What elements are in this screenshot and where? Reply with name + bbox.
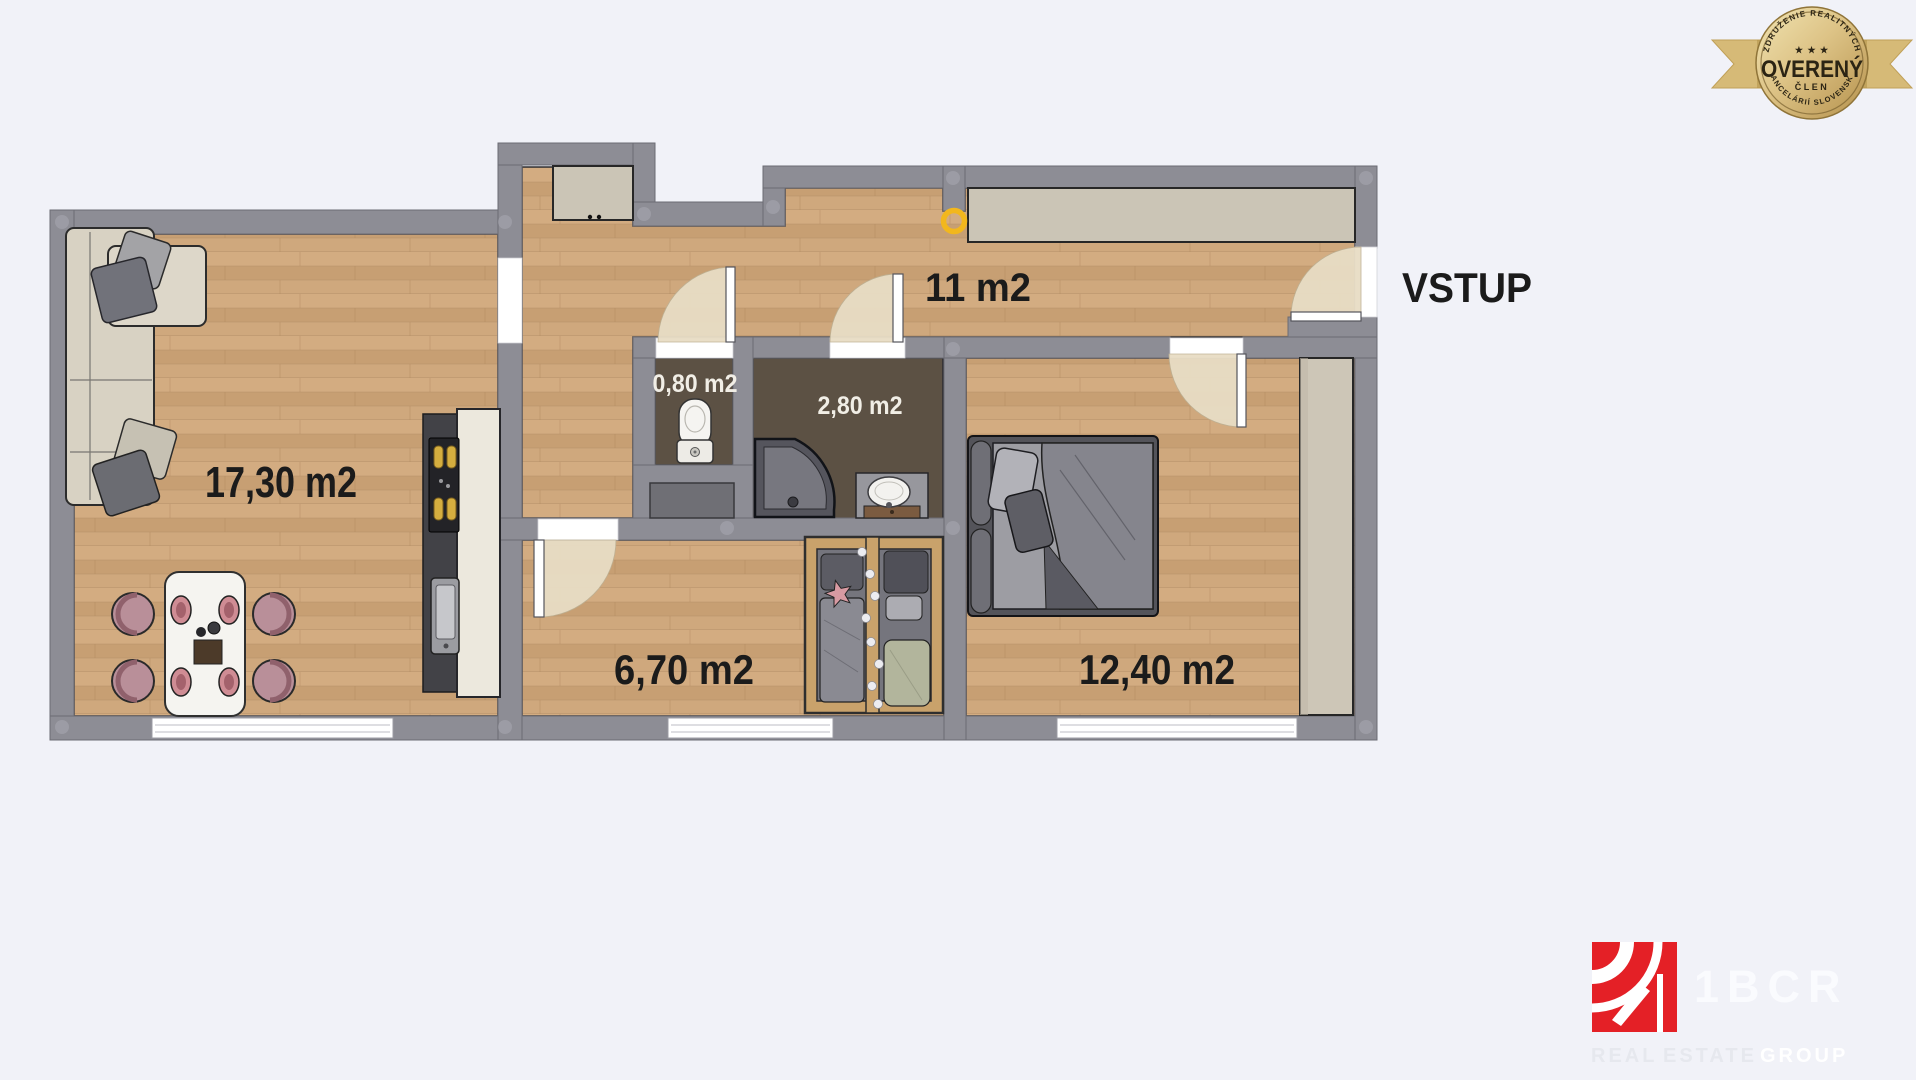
room-label-bathroom: 2,80 m2 — [818, 392, 903, 420]
member-badge: ZDRUŽENIE REALITNÝCH ★ ★ ★ OVERENÝ ČLEN … — [0, 0, 1912, 119]
closet-handle — [588, 215, 592, 219]
crib-cushion — [886, 596, 922, 620]
logo-word-real: REAL — [1591, 1045, 1657, 1067]
crib-green-blanket — [884, 640, 930, 706]
kitchen-counter — [457, 409, 500, 697]
logo-word-estate: ESTATE — [1663, 1045, 1757, 1067]
bedroom-window — [1057, 718, 1297, 738]
room-label-hallway: 11 m2 — [925, 266, 1031, 310]
crib — [805, 537, 943, 713]
room-label-kids: 6,70 m2 — [614, 646, 754, 693]
room-label-wc: 0,80 m2 — [653, 370, 738, 398]
living-passage-opening — [498, 258, 522, 343]
badge-arc-bottom-text: KANCELÁRIÍ SLOVENSKA — [0, 0, 1855, 107]
dining-chair — [253, 593, 295, 635]
entrance-door-leaf — [1291, 312, 1361, 321]
living-room-window — [152, 718, 393, 738]
logo-word-group: GROUP — [1760, 1045, 1848, 1067]
closet-handle — [597, 215, 601, 219]
hall-shelf — [650, 483, 734, 518]
wc-door-leaf — [726, 267, 735, 342]
wardrobe — [1300, 358, 1353, 715]
kitchen-unit — [423, 409, 500, 697]
double-bed — [968, 436, 1158, 616]
crib-pillow — [821, 554, 863, 590]
svg-text:KANCELÁRIÍ SLOVENSKA: KANCELÁRIÍ SLOVENSKA — [0, 0, 1855, 107]
toilet — [677, 399, 713, 463]
badge-member: ČLEN — [1795, 81, 1830, 92]
logo-brand-text: 1BCR — [1694, 961, 1849, 1012]
bedroom-door-leaf — [1237, 354, 1246, 427]
kids-room-door-opening — [538, 519, 618, 540]
crib-blanket — [820, 598, 864, 702]
hall-closet — [553, 166, 633, 220]
kids-room-door-leaf — [534, 540, 544, 617]
badge-stars: ★ ★ ★ — [1795, 45, 1829, 55]
windows — [152, 718, 1297, 738]
dining-chair — [112, 593, 154, 635]
dining-chair — [253, 660, 295, 702]
crib-pillow — [884, 551, 928, 593]
bathroom-sink — [856, 473, 928, 518]
floor-plan-page: 17,30 m2 11 m2 0,80 m2 2,80 m2 6,70 m2 1… — [0, 0, 1916, 1080]
brand-logo: 1BCR REAL ESTATE GROUP — [1591, 942, 1849, 1067]
room-label-bedroom: 12,40 m2 — [1079, 646, 1235, 693]
floorplan-canvas: 17,30 m2 11 m2 0,80 m2 2,80 m2 6,70 m2 1… — [0, 0, 1916, 1080]
dining-chair — [112, 660, 154, 702]
kids-room-window — [668, 718, 833, 738]
bathroom-door-leaf — [893, 274, 903, 342]
entrance-label: VSTUP — [1402, 264, 1532, 311]
entry-cabinet — [968, 188, 1355, 242]
room-label-living: 17,30 m2 — [205, 458, 357, 507]
